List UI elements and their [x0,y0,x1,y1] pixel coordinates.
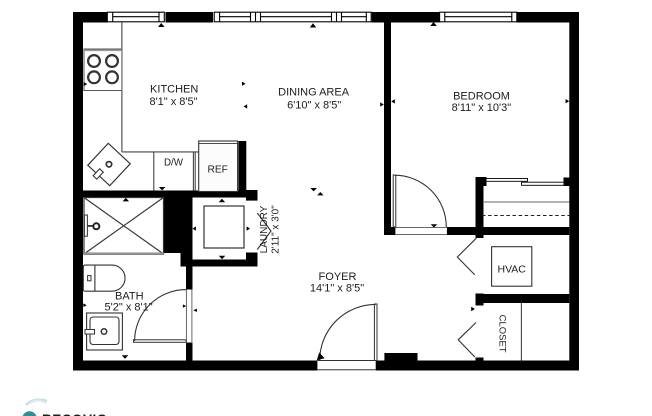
svg-text:DINING AREA: DINING AREA [278,87,350,99]
svg-text:14'1" x 8'5": 14'1" x 8'5" [310,283,364,295]
svg-text:8'1" x 8'5": 8'1" x 8'5" [149,96,197,108]
svg-text:LAUNDRY: LAUNDRY [259,205,270,253]
svg-text:REF: REF [208,165,228,176]
svg-text:HVAC: HVAC [497,264,526,276]
svg-text:5'2" x 8'1": 5'2" x 8'1" [105,302,153,314]
svg-text:8'11" x 10'3": 8'11" x 10'3" [452,102,512,114]
svg-text:RECOVIC: RECOVIC [42,412,107,416]
svg-text:6'10" x 8'5": 6'10" x 8'5" [287,99,341,111]
svg-text:BEDROOM: BEDROOM [453,91,510,103]
svg-text:CLOSET: CLOSET [497,315,508,353]
svg-text:D/W: D/W [164,158,184,169]
svg-text:2'11" x 3'0": 2'11" x 3'0" [271,205,282,254]
svg-text:FOYER: FOYER [319,271,357,283]
svg-text:KITCHEN: KITCHEN [150,84,198,96]
